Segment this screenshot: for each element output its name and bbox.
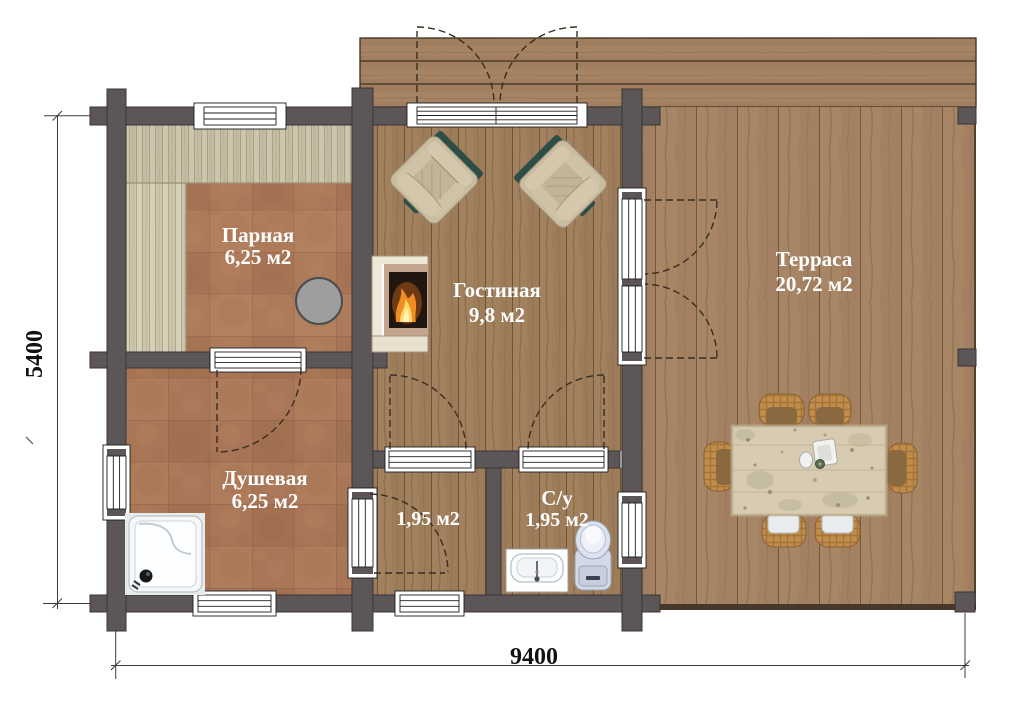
svg-text:9,8 м2: 9,8 м2 xyxy=(469,303,525,327)
svg-text:Парная: Парная xyxy=(222,223,294,247)
svg-text:Гостиная: Гостиная xyxy=(453,278,541,302)
svg-text:1,95 м2: 1,95 м2 xyxy=(396,508,460,530)
svg-text:С/у: С/у xyxy=(541,486,573,510)
svg-text:6,25 м2: 6,25 м2 xyxy=(225,245,292,269)
svg-text:1,95 м2: 1,95 м2 xyxy=(525,509,589,531)
svg-text:9400: 9400 xyxy=(510,644,558,670)
svg-text:20,72 м2: 20,72 м2 xyxy=(775,272,852,296)
svg-text:Душевая: Душевая xyxy=(222,466,307,490)
svg-text:6,25 м2: 6,25 м2 xyxy=(232,489,299,513)
svg-text:5400: 5400 xyxy=(22,330,48,378)
svg-text:Терраса: Терраса xyxy=(776,247,853,271)
